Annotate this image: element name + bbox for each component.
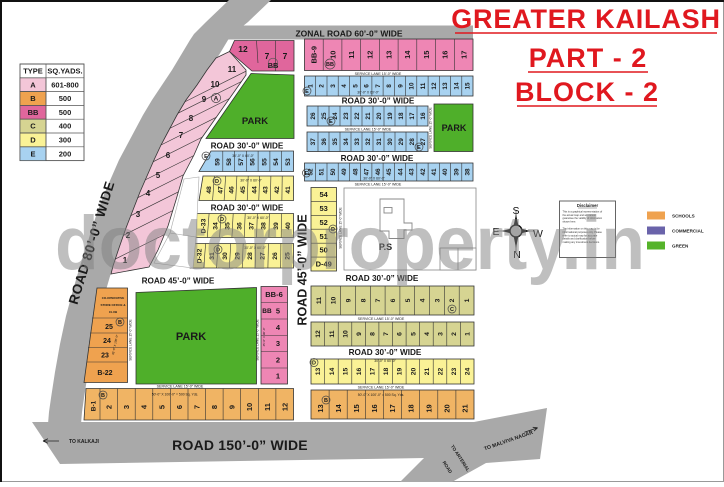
svg-text:9: 9 <box>202 95 207 104</box>
svg-text:11: 11 <box>329 330 336 337</box>
svg-text:400: 400 <box>59 122 72 131</box>
svg-text:SCHOOLS: SCHOOLS <box>672 214 695 219</box>
svg-text:21: 21 <box>365 112 372 120</box>
svg-text:5: 5 <box>405 298 412 302</box>
svg-text:2: 2 <box>276 355 280 364</box>
svg-text:57: 57 <box>238 158 245 166</box>
svg-text:7: 7 <box>192 405 201 409</box>
svg-text:B-1: B-1 <box>91 400 98 411</box>
svg-text:55: 55 <box>261 158 268 166</box>
svg-text:12: 12 <box>280 403 289 411</box>
svg-text:C: C <box>30 122 36 131</box>
svg-text:CO-OPERATIVE: CO-OPERATIVE <box>102 296 125 300</box>
svg-text:GREATER KAILASH: GREATER KAILASH <box>451 4 721 34</box>
svg-text:C: C <box>450 307 454 313</box>
svg-text:24: 24 <box>332 112 339 120</box>
svg-text:10: 10 <box>211 80 220 89</box>
svg-text:44: 44 <box>251 186 258 194</box>
svg-text:2: 2 <box>449 298 456 302</box>
svg-text:10: 10 <box>328 51 337 59</box>
svg-text:BLOCK - 2: BLOCK - 2 <box>515 77 659 107</box>
svg-text:50’-0” X 100’-0” = 500 Sq. Yds: 50’-0” X 100’-0” = 500 Sq. Yds. <box>152 393 199 397</box>
svg-text:28: 28 <box>409 138 416 146</box>
svg-text:SERVICE LANE 15’-0” WIDE: SERVICE LANE 15’-0” WIDE <box>129 319 133 360</box>
svg-text:19: 19 <box>397 368 404 376</box>
svg-text:doctorproperty.in: doctorproperty.in <box>55 201 645 286</box>
svg-text:16: 16 <box>420 112 427 120</box>
svg-text:34: 34 <box>343 138 350 146</box>
svg-text:45: 45 <box>386 168 393 176</box>
svg-text:3: 3 <box>434 298 441 302</box>
svg-text:3: 3 <box>276 339 280 348</box>
svg-text:7: 7 <box>265 51 270 61</box>
svg-text:56: 56 <box>250 158 257 166</box>
svg-text:7: 7 <box>375 84 382 88</box>
svg-text:7: 7 <box>179 131 184 140</box>
svg-text:45: 45 <box>240 186 247 194</box>
svg-text:30’-0” X 60’-0”: 30’-0” X 60’-0” <box>240 179 261 183</box>
svg-text:SERVICE LANE 15’-0” WIDE: SERVICE LANE 15’-0” WIDE <box>358 317 405 321</box>
svg-text:51: 51 <box>319 168 326 176</box>
svg-text:8: 8 <box>386 84 393 88</box>
svg-text:CLUB: CLUB <box>109 310 118 314</box>
svg-text:B: B <box>118 320 122 326</box>
svg-text:15: 15 <box>352 404 361 412</box>
svg-text:2: 2 <box>104 405 113 409</box>
svg-text:PARK: PARK <box>442 123 467 133</box>
svg-text:46: 46 <box>229 186 236 194</box>
svg-text:42: 42 <box>274 186 281 194</box>
svg-text:6: 6 <box>175 405 184 409</box>
svg-text:6: 6 <box>364 84 371 88</box>
svg-text:17: 17 <box>409 112 416 120</box>
svg-text:30’-0” X 60’-0”: 30’-0” X 60’-0” <box>357 91 378 95</box>
svg-text:300: 300 <box>59 136 72 145</box>
svg-text:13: 13 <box>315 368 322 376</box>
svg-text:12: 12 <box>366 51 375 59</box>
svg-text:50: 50 <box>330 168 337 176</box>
svg-text:37: 37 <box>310 138 317 146</box>
svg-text:20: 20 <box>410 368 417 376</box>
svg-text:40: 40 <box>442 168 449 176</box>
svg-text:500: 500 <box>59 108 72 117</box>
svg-text:13: 13 <box>316 404 325 412</box>
svg-text:D: D <box>30 136 36 145</box>
svg-text:9: 9 <box>345 298 352 302</box>
svg-text:TYPE: TYPE <box>23 67 43 76</box>
svg-text:48: 48 <box>352 168 359 176</box>
svg-text:B-22: B-22 <box>97 370 112 377</box>
svg-text:13: 13 <box>384 51 393 59</box>
svg-text:B: B <box>324 398 328 404</box>
svg-text:8: 8 <box>370 332 377 336</box>
svg-text:E: E <box>305 89 309 95</box>
svg-text:500: 500 <box>59 94 72 103</box>
svg-text:16: 16 <box>356 368 363 376</box>
svg-text:ROAD 30’-0” WIDE: ROAD 30’-0” WIDE <box>211 142 284 151</box>
svg-text:BB: BB <box>326 62 334 68</box>
svg-text:47: 47 <box>217 186 224 194</box>
svg-text:BB: BB <box>262 308 272 315</box>
svg-text:29: 29 <box>398 138 405 146</box>
svg-text:11: 11 <box>263 403 272 411</box>
svg-text:30’-0” X 60’-0”: 30’-0” X 60’-0” <box>232 154 253 158</box>
svg-text:6: 6 <box>390 298 397 302</box>
svg-text:54: 54 <box>273 158 280 166</box>
svg-text:10: 10 <box>245 403 254 411</box>
svg-text:18: 18 <box>406 404 415 412</box>
svg-text:8: 8 <box>189 114 194 123</box>
svg-text:E: E <box>417 145 421 151</box>
svg-text:11: 11 <box>420 82 427 89</box>
svg-text:5: 5 <box>157 405 166 409</box>
svg-text:44: 44 <box>397 168 404 176</box>
svg-text:10: 10 <box>342 330 349 338</box>
svg-text:22: 22 <box>437 368 444 376</box>
svg-text:58: 58 <box>226 158 233 166</box>
svg-text:45’-0” X 90’-0”: 45’-0” X 90’-0” <box>262 327 266 346</box>
svg-text:6: 6 <box>397 332 404 336</box>
svg-text:13: 13 <box>442 82 449 90</box>
svg-text:41: 41 <box>285 186 292 194</box>
svg-text:1: 1 <box>464 298 471 302</box>
svg-text:16: 16 <box>370 404 379 412</box>
svg-text:ROAD 150’-0” WIDE: ROAD 150’-0” WIDE <box>172 437 308 453</box>
svg-text:SERVICE LANE 15’-0” WIDE: SERVICE LANE 15’-0” WIDE <box>256 319 260 360</box>
svg-text:A: A <box>30 80 36 89</box>
svg-text:23: 23 <box>101 353 109 360</box>
svg-text:B: B <box>30 94 36 103</box>
svg-text:E: E <box>305 171 309 177</box>
svg-text:7: 7 <box>283 51 288 61</box>
svg-text:38: 38 <box>465 168 472 176</box>
svg-text:11: 11 <box>228 65 237 74</box>
svg-text:E: E <box>204 154 208 160</box>
svg-text:STORE OFFICE &: STORE OFFICE & <box>100 303 126 307</box>
svg-text:54: 54 <box>320 190 329 199</box>
svg-text:E: E <box>30 149 35 158</box>
svg-text:BB: BB <box>28 108 39 117</box>
svg-text:23: 23 <box>343 112 350 120</box>
svg-text:23: 23 <box>451 368 458 376</box>
svg-text:COMMERCIAL: COMMERCIAL <box>672 229 704 234</box>
svg-text:3: 3 <box>330 84 337 88</box>
svg-text:601-800: 601-800 <box>51 80 79 89</box>
svg-text:16: 16 <box>441 51 450 59</box>
svg-text:5: 5 <box>410 332 417 336</box>
svg-text:33: 33 <box>354 138 361 146</box>
svg-text:11: 11 <box>316 297 323 304</box>
svg-text:43: 43 <box>409 168 416 176</box>
svg-text:22: 22 <box>354 112 361 120</box>
svg-text:19: 19 <box>424 404 433 412</box>
svg-text:27: 27 <box>420 138 427 146</box>
svg-text:10: 10 <box>409 82 416 90</box>
svg-text:21: 21 <box>424 368 431 376</box>
svg-text:4: 4 <box>424 332 431 336</box>
svg-text:21: 21 <box>461 404 470 412</box>
svg-text:50’-0” X 100’-0” = 500 Sq. Yds: 50’-0” X 100’-0” = 500 Sq. Yds. <box>358 393 405 397</box>
svg-text:1: 1 <box>465 332 472 336</box>
svg-text:24: 24 <box>103 338 111 345</box>
svg-text:25: 25 <box>321 112 328 120</box>
svg-text:14: 14 <box>403 50 412 59</box>
svg-text:24: 24 <box>465 368 472 376</box>
svg-text:14: 14 <box>453 82 460 90</box>
svg-text:8: 8 <box>210 405 219 409</box>
svg-text:5: 5 <box>276 306 280 315</box>
svg-text:30’-0” X 60’-0”: 30’-0” X 60’-0” <box>363 177 384 181</box>
svg-text:200: 200 <box>59 149 72 158</box>
svg-text:18: 18 <box>398 112 405 120</box>
svg-text:9: 9 <box>356 332 363 336</box>
svg-text:D: D <box>215 179 219 185</box>
svg-text:SERVICE LANE 15’-0” WIDE: SERVICE LANE 15’-0” WIDE <box>429 107 433 148</box>
svg-text:20: 20 <box>443 404 452 412</box>
svg-text:36: 36 <box>321 138 328 146</box>
svg-text:49: 49 <box>341 168 348 176</box>
svg-text:3: 3 <box>437 332 444 336</box>
svg-text:7: 7 <box>383 332 390 336</box>
svg-text:D: D <box>312 360 316 366</box>
svg-text:PARK: PARK <box>242 116 268 127</box>
svg-text:14: 14 <box>329 368 336 376</box>
svg-text:SERVICE LANE 15’-0” WIDE: SERVICE LANE 15’-0” WIDE <box>358 386 405 390</box>
svg-text:BB-9: BB-9 <box>310 46 319 64</box>
svg-text:SERVICE LANE 15’-0” WIDE: SERVICE LANE 15’-0” WIDE <box>355 183 402 187</box>
svg-text:SQ.YADS.: SQ.YADS. <box>47 67 82 76</box>
svg-text:BB-6: BB-6 <box>265 290 283 299</box>
svg-text:A: A <box>214 95 219 102</box>
svg-text:15: 15 <box>342 368 349 376</box>
svg-text:7: 7 <box>375 298 382 302</box>
svg-text:SERVICE LANE 15’-0” WIDE: SERVICE LANE 15’-0” WIDE <box>157 385 204 389</box>
svg-text:20: 20 <box>376 112 383 120</box>
svg-text:17: 17 <box>370 368 377 376</box>
svg-text:15: 15 <box>465 82 472 90</box>
svg-text:59: 59 <box>214 158 221 166</box>
svg-text:ROAD 30’-0” WIDE: ROAD 30’-0” WIDE <box>341 154 414 163</box>
svg-text:SERVICE LANE 15’-0” WIDE: SERVICE LANE 15’-0” WIDE <box>345 128 392 132</box>
svg-text:11: 11 <box>347 51 356 59</box>
svg-text:43: 43 <box>263 186 270 194</box>
svg-text:ROAD 30’-0” WIDE: ROAD 30’-0” WIDE <box>342 97 415 106</box>
svg-text:32: 32 <box>365 138 372 146</box>
svg-text:B: B <box>101 393 105 399</box>
svg-text:42: 42 <box>420 168 427 176</box>
svg-text:10: 10 <box>331 297 338 305</box>
svg-text:PARK: PARK <box>176 331 206 343</box>
svg-text:6: 6 <box>166 151 171 160</box>
svg-text:18: 18 <box>383 368 390 376</box>
svg-text:ZONAL ROAD 60’-0” WIDE: ZONAL ROAD 60’-0” WIDE <box>295 28 402 38</box>
svg-text:30: 30 <box>387 138 394 146</box>
svg-text:2: 2 <box>451 332 458 336</box>
svg-text:14: 14 <box>334 404 343 413</box>
svg-text:1: 1 <box>276 372 280 381</box>
svg-text:48: 48 <box>206 186 213 194</box>
svg-text:TO KALKAJI: TO KALKAJI <box>69 439 100 445</box>
svg-text:47: 47 <box>364 168 371 176</box>
svg-text:53: 53 <box>285 158 292 166</box>
svg-text:GREEN: GREEN <box>672 244 689 249</box>
svg-text:35: 35 <box>332 138 339 146</box>
svg-text:25: 25 <box>105 324 113 331</box>
svg-text:12: 12 <box>238 44 248 54</box>
svg-text:31: 31 <box>376 138 383 146</box>
svg-text:46: 46 <box>375 168 382 176</box>
svg-text:3: 3 <box>122 405 131 409</box>
svg-text:19: 19 <box>387 112 394 120</box>
svg-text:PART - 2: PART - 2 <box>529 43 648 73</box>
svg-text:4: 4 <box>341 84 348 88</box>
svg-text:12: 12 <box>315 330 322 338</box>
svg-text:5: 5 <box>156 171 161 180</box>
svg-text:2: 2 <box>319 84 326 88</box>
svg-text:4: 4 <box>420 298 427 302</box>
svg-text:17: 17 <box>459 51 468 59</box>
svg-text:ROAD 30’-0” WIDE: ROAD 30’-0” WIDE <box>349 348 422 357</box>
svg-text:SERVICE LANE 15’-0” WIDE: SERVICE LANE 15’-0” WIDE <box>355 72 402 76</box>
svg-text:9: 9 <box>228 405 237 409</box>
svg-text:8: 8 <box>360 298 367 302</box>
svg-text:E: E <box>329 119 333 125</box>
svg-text:15: 15 <box>422 51 431 59</box>
svg-text:9: 9 <box>397 84 404 88</box>
svg-text:12: 12 <box>431 82 438 90</box>
svg-text:30’-0” X 60’-0”: 30’-0” X 60’-0” <box>374 359 395 363</box>
svg-text:41: 41 <box>431 168 438 176</box>
svg-text:4: 4 <box>146 189 151 198</box>
svg-text:39: 39 <box>453 168 460 176</box>
svg-text:17: 17 <box>388 404 397 412</box>
svg-text:5: 5 <box>352 84 359 88</box>
svg-text:26: 26 <box>310 112 317 120</box>
